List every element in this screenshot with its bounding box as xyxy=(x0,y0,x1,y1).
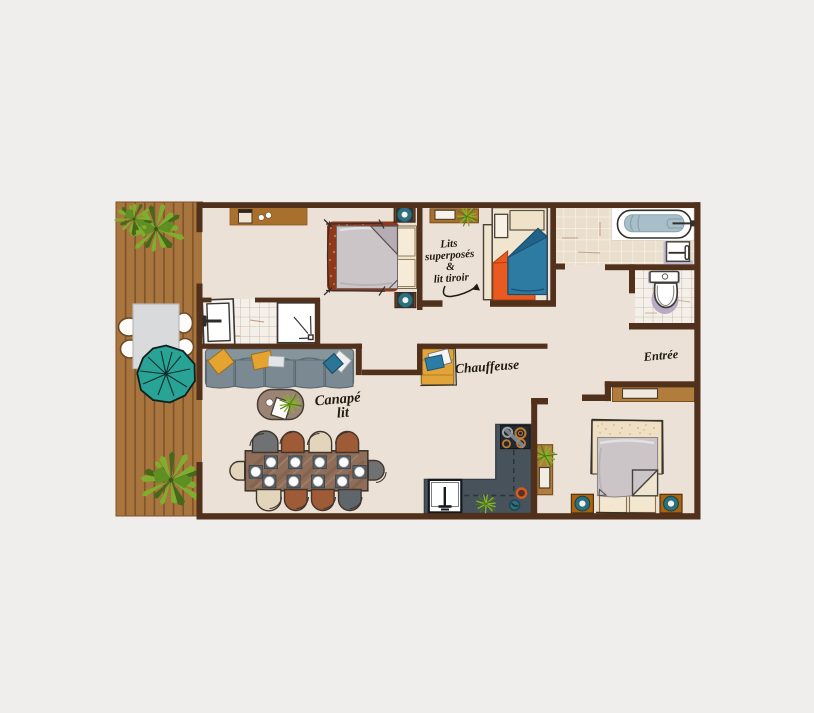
svg-text:lit tiroir: lit tiroir xyxy=(433,271,470,285)
svg-text:lit: lit xyxy=(336,405,350,422)
